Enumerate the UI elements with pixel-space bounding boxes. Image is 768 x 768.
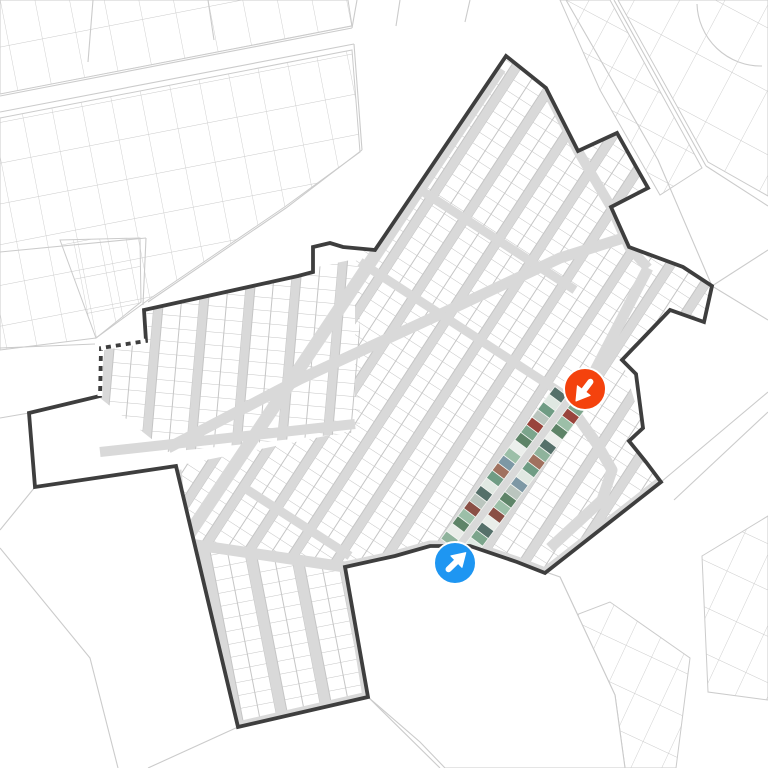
urban-plan-map bbox=[0, 0, 768, 768]
map-canvas bbox=[0, 0, 768, 768]
red-arrow-marker[interactable] bbox=[564, 368, 606, 410]
blue-arrow-marker[interactable] bbox=[434, 542, 476, 584]
